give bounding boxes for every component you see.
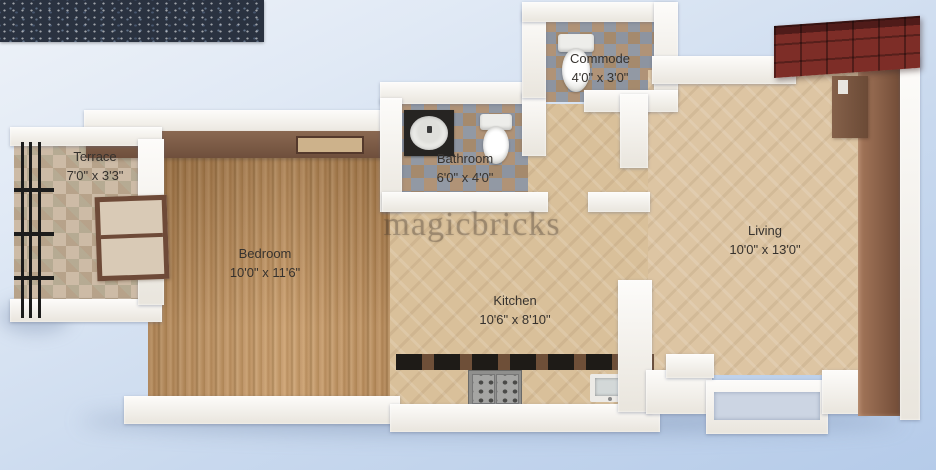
- stove-icon: [468, 370, 522, 408]
- room-label-terrace: Terrace 7'0" x 3'3": [40, 148, 150, 186]
- room-label-commode: Commode 4'0" x 3'0": [540, 50, 660, 88]
- washbasin-tap-icon: [427, 126, 432, 133]
- room-label-bathroom: Bathroom 6'0" x 4'0": [400, 150, 530, 188]
- main-door-leaf: [832, 76, 868, 138]
- bedroom-bottom-wall: [124, 396, 400, 424]
- bathroom-right-wall: [522, 92, 546, 156]
- hall-living-wall-upper: [620, 94, 648, 168]
- room-dims: 10'0" x 11'6": [185, 264, 345, 283]
- right-outer-wall: [900, 56, 920, 420]
- room-name: Bedroom: [185, 245, 345, 264]
- washbasin-bowl: [410, 116, 448, 150]
- bathroom-top-wall: [380, 82, 544, 104]
- door-hinge: [838, 80, 848, 94]
- living-window: [706, 380, 828, 434]
- room-dims: 7'0" x 3'3": [40, 167, 150, 186]
- room-dims: 10'0" x 13'0": [685, 241, 845, 260]
- terrace-door: [95, 195, 170, 281]
- watermark: magicbricks: [352, 206, 592, 244]
- railing-rail: [14, 232, 54, 236]
- kitchen-counter-granite: [0, 0, 264, 42]
- room-name: Bathroom: [400, 150, 530, 169]
- room-name: Commode: [540, 50, 660, 69]
- room-name: Kitchen: [430, 292, 600, 311]
- room-dims: 4'0" x 3'0": [540, 69, 660, 88]
- railing-bar: [29, 142, 32, 318]
- kitchen-cabinets: [396, 354, 654, 370]
- room-name: Living: [685, 222, 845, 241]
- main-door-open-panel: [774, 16, 920, 78]
- railing-bar: [21, 142, 24, 318]
- commode-top-wall: [522, 2, 676, 22]
- room-dims: 10'6" x 8'10": [430, 311, 600, 330]
- room-label-bedroom: Bedroom 10'0" x 11'6": [185, 245, 345, 283]
- room-label-living: Living 10'0" x 13'0": [685, 222, 845, 260]
- room-name: Terrace: [40, 148, 150, 167]
- bedroom-window: [296, 136, 364, 154]
- hall-living-wall-mid: [588, 192, 650, 212]
- room-dims: 6'0" x 4'0": [400, 169, 530, 188]
- window-pane: [714, 392, 820, 420]
- stove-burners: [496, 374, 519, 404]
- railing-rail: [14, 276, 54, 280]
- stove-burners: [472, 374, 495, 404]
- living-step-block: [666, 354, 714, 378]
- railing-rail: [14, 188, 54, 192]
- floorplan-canvas: Terrace 7'0" x 3'3" Bedroom 10'0" x 11'6…: [0, 0, 936, 470]
- terrace-door-divider: [101, 232, 163, 238]
- room-label-kitchen: Kitchen 10'6" x 8'10": [430, 292, 600, 330]
- sink-tap-icon: [608, 397, 612, 401]
